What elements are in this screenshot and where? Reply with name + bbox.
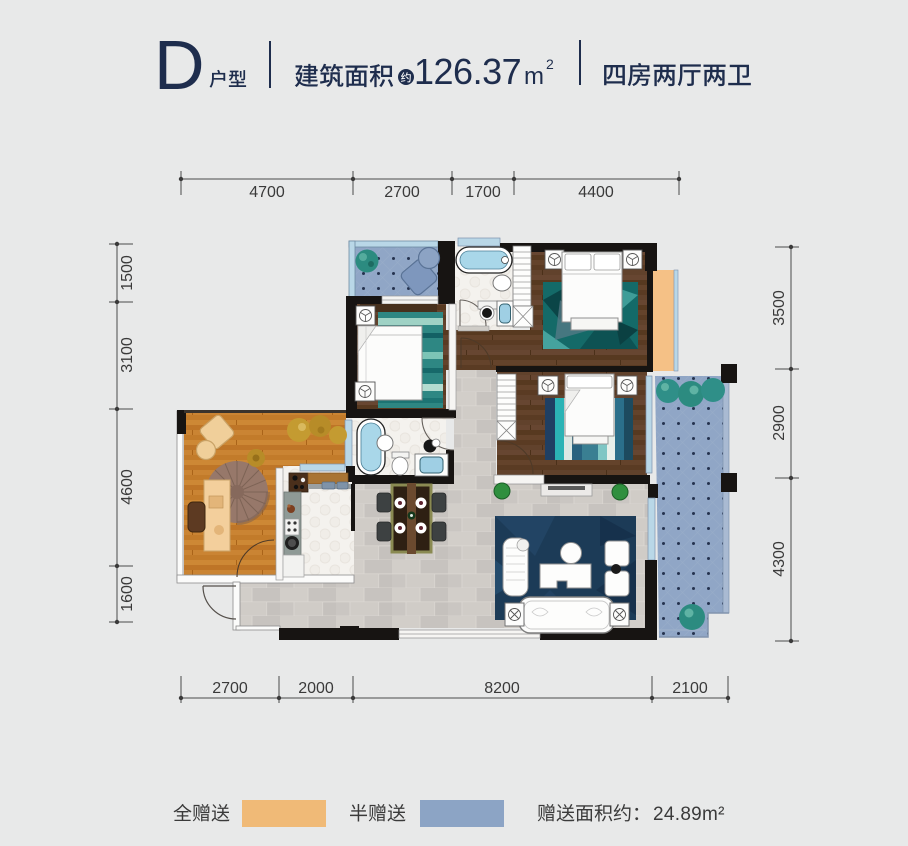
svg-text:4400: 4400: [578, 184, 614, 201]
svg-text:4700: 4700: [249, 184, 285, 201]
svg-text:m: m: [524, 63, 544, 90]
svg-text:3500: 3500: [771, 290, 788, 326]
svg-text:D: D: [154, 26, 205, 104]
svg-text:1700: 1700: [465, 184, 501, 201]
svg-text:4300: 4300: [771, 541, 788, 577]
svg-text:24.89m²: 24.89m²: [653, 804, 725, 825]
svg-text:2700: 2700: [212, 680, 248, 697]
svg-text:2100: 2100: [672, 680, 708, 697]
svg-text:2900: 2900: [771, 405, 788, 441]
svg-text:1500: 1500: [119, 255, 136, 291]
svg-text:2700: 2700: [384, 184, 420, 201]
svg-text:3100: 3100: [119, 337, 136, 373]
svg-text:4600: 4600: [119, 469, 136, 505]
svg-text:2000: 2000: [298, 680, 334, 697]
svg-text:126.37: 126.37: [414, 51, 521, 92]
svg-text:2: 2: [546, 56, 554, 72]
svg-text:1600: 1600: [119, 576, 136, 612]
svg-text:8200: 8200: [484, 680, 520, 697]
